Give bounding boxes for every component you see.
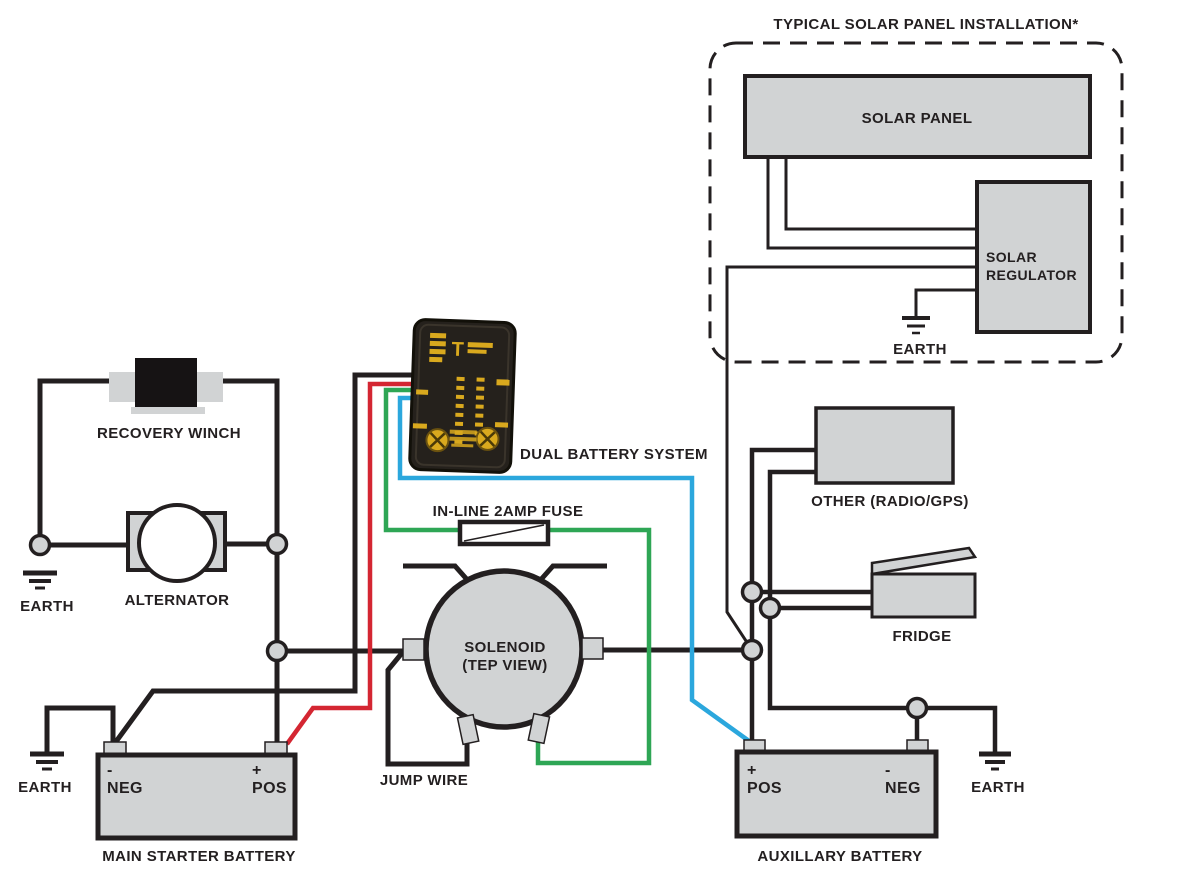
main-battery-earth-label: EARTH	[18, 779, 72, 796]
recovery-winch-label: RECOVERY WINCH	[97, 425, 241, 442]
winch-drum	[135, 358, 197, 407]
wire-main-neg-to-earth	[47, 708, 113, 754]
solar-regulator-label-1: SOLAR	[986, 249, 1037, 265]
wire-solar-regulator-earth	[916, 290, 977, 318]
aux-battery-earth-label: EARTH	[971, 779, 1025, 796]
controller-knob-right	[476, 428, 499, 451]
controller-knob-left	[426, 429, 449, 452]
solenoid-label-1: SOLENOID	[464, 639, 546, 656]
fridge-label: FRIDGE	[892, 628, 951, 645]
junction-dot	[31, 536, 50, 555]
solenoid-terminal-left	[403, 639, 424, 660]
inline-fuse	[460, 522, 548, 544]
solar-earth-label: EARTH	[893, 341, 947, 358]
svg-text:T: T	[451, 339, 464, 361]
wire-winch-left-to-earth	[40, 381, 110, 545]
winch-mount-right	[195, 372, 223, 402]
junction-dot	[908, 699, 927, 718]
main-pos-sign: +	[252, 762, 262, 779]
aux-neg-label: NEG	[885, 780, 921, 797]
diagram-canvas: T	[0, 0, 1177, 889]
solenoid-terminal-right	[582, 638, 603, 659]
main-neg-sign: -	[107, 762, 113, 779]
alternator-label: ALTERNATOR	[125, 592, 230, 609]
winch-base	[131, 407, 205, 414]
fridge-lid	[872, 548, 975, 574]
junction-dot	[761, 599, 780, 618]
main-neg-label: NEG	[107, 780, 143, 797]
fridge	[872, 548, 975, 617]
junction-dot	[268, 642, 287, 661]
solar-installation-title: TYPICAL SOLAR PANEL INSTALLATION*	[773, 16, 1078, 33]
winch-mount-left	[109, 372, 137, 402]
earth-ground-icon-aux-battery	[979, 754, 1011, 769]
aux-neg-sign: -	[885, 762, 891, 779]
recovery-winch	[109, 358, 223, 414]
solenoid-label-2: (TEP VIEW)	[462, 657, 547, 674]
wire-solar-panel-to-regulator-2	[786, 157, 977, 229]
earth-ground-icon-solar	[902, 318, 930, 333]
alternator	[128, 505, 225, 581]
solar-regulator-label-2: REGULATOR	[986, 267, 1077, 283]
aux-battery-caption: AUXILLARY BATTERY	[757, 848, 922, 865]
alternator-earth-label: EARTH	[20, 598, 74, 615]
alternator-pulley	[139, 505, 215, 581]
dual-battery-wiring-diagram: T	[0, 0, 1177, 889]
earth-ground-icon-alternator	[23, 573, 57, 588]
solar-panel-label: SOLAR PANEL	[862, 110, 973, 127]
main-battery-caption: MAIN STARTER BATTERY	[102, 848, 296, 865]
fridge-body	[872, 574, 975, 617]
aux-pos-label: POS	[747, 780, 782, 797]
controller-label-strip	[449, 430, 477, 448]
earth-ground-icon-main-battery	[30, 754, 64, 769]
junction-dot	[743, 641, 762, 660]
dual-battery-label: DUAL BATTERY SYSTEM	[520, 446, 708, 463]
other-load-box	[816, 408, 953, 483]
inline-fuse-label: IN-LINE 2AMP FUSE	[433, 503, 584, 520]
junction-dot	[268, 535, 287, 554]
wire-solar-panel-to-regulator-1	[768, 157, 977, 248]
aux-pos-sign: +	[747, 762, 757, 779]
other-load-label: OTHER (RADIO/GPS)	[811, 493, 969, 510]
junction-dot	[743, 583, 762, 602]
jump-wire-label: JUMP WIRE	[380, 772, 468, 789]
main-pos-label: POS	[252, 780, 287, 797]
dual-battery-controller: T	[409, 319, 515, 472]
